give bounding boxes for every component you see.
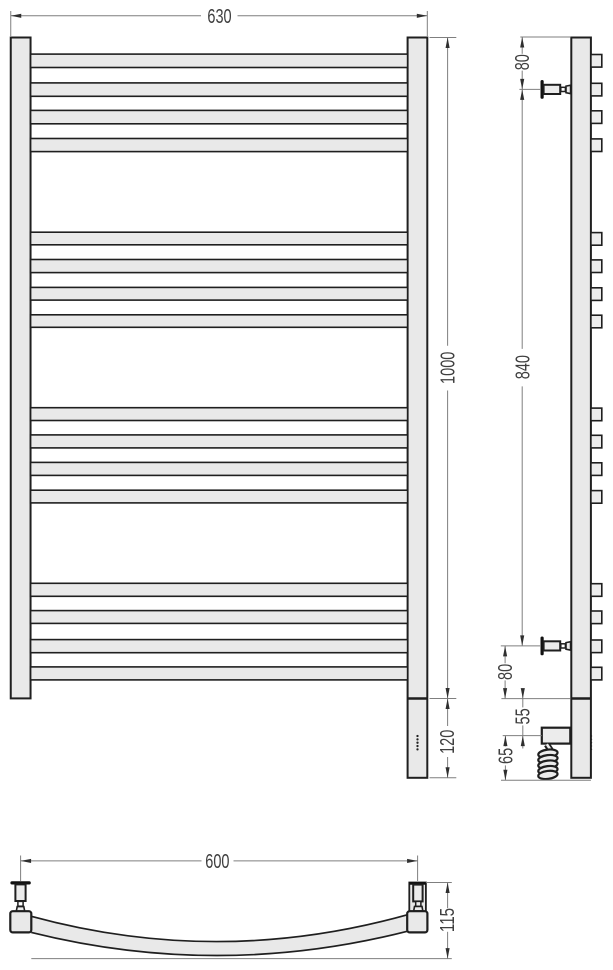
svg-text:1000: 1000 [437, 352, 459, 384]
svg-text:55: 55 [512, 708, 534, 724]
svg-text:630: 630 [207, 6, 231, 28]
svg-text:840: 840 [512, 355, 534, 379]
svg-text:115: 115 [437, 908, 459, 932]
svg-text:600: 600 [205, 851, 229, 873]
svg-text:65: 65 [496, 748, 518, 764]
svg-text:80: 80 [495, 664, 517, 680]
svg-text:80: 80 [512, 54, 534, 70]
svg-text:120: 120 [437, 730, 459, 754]
